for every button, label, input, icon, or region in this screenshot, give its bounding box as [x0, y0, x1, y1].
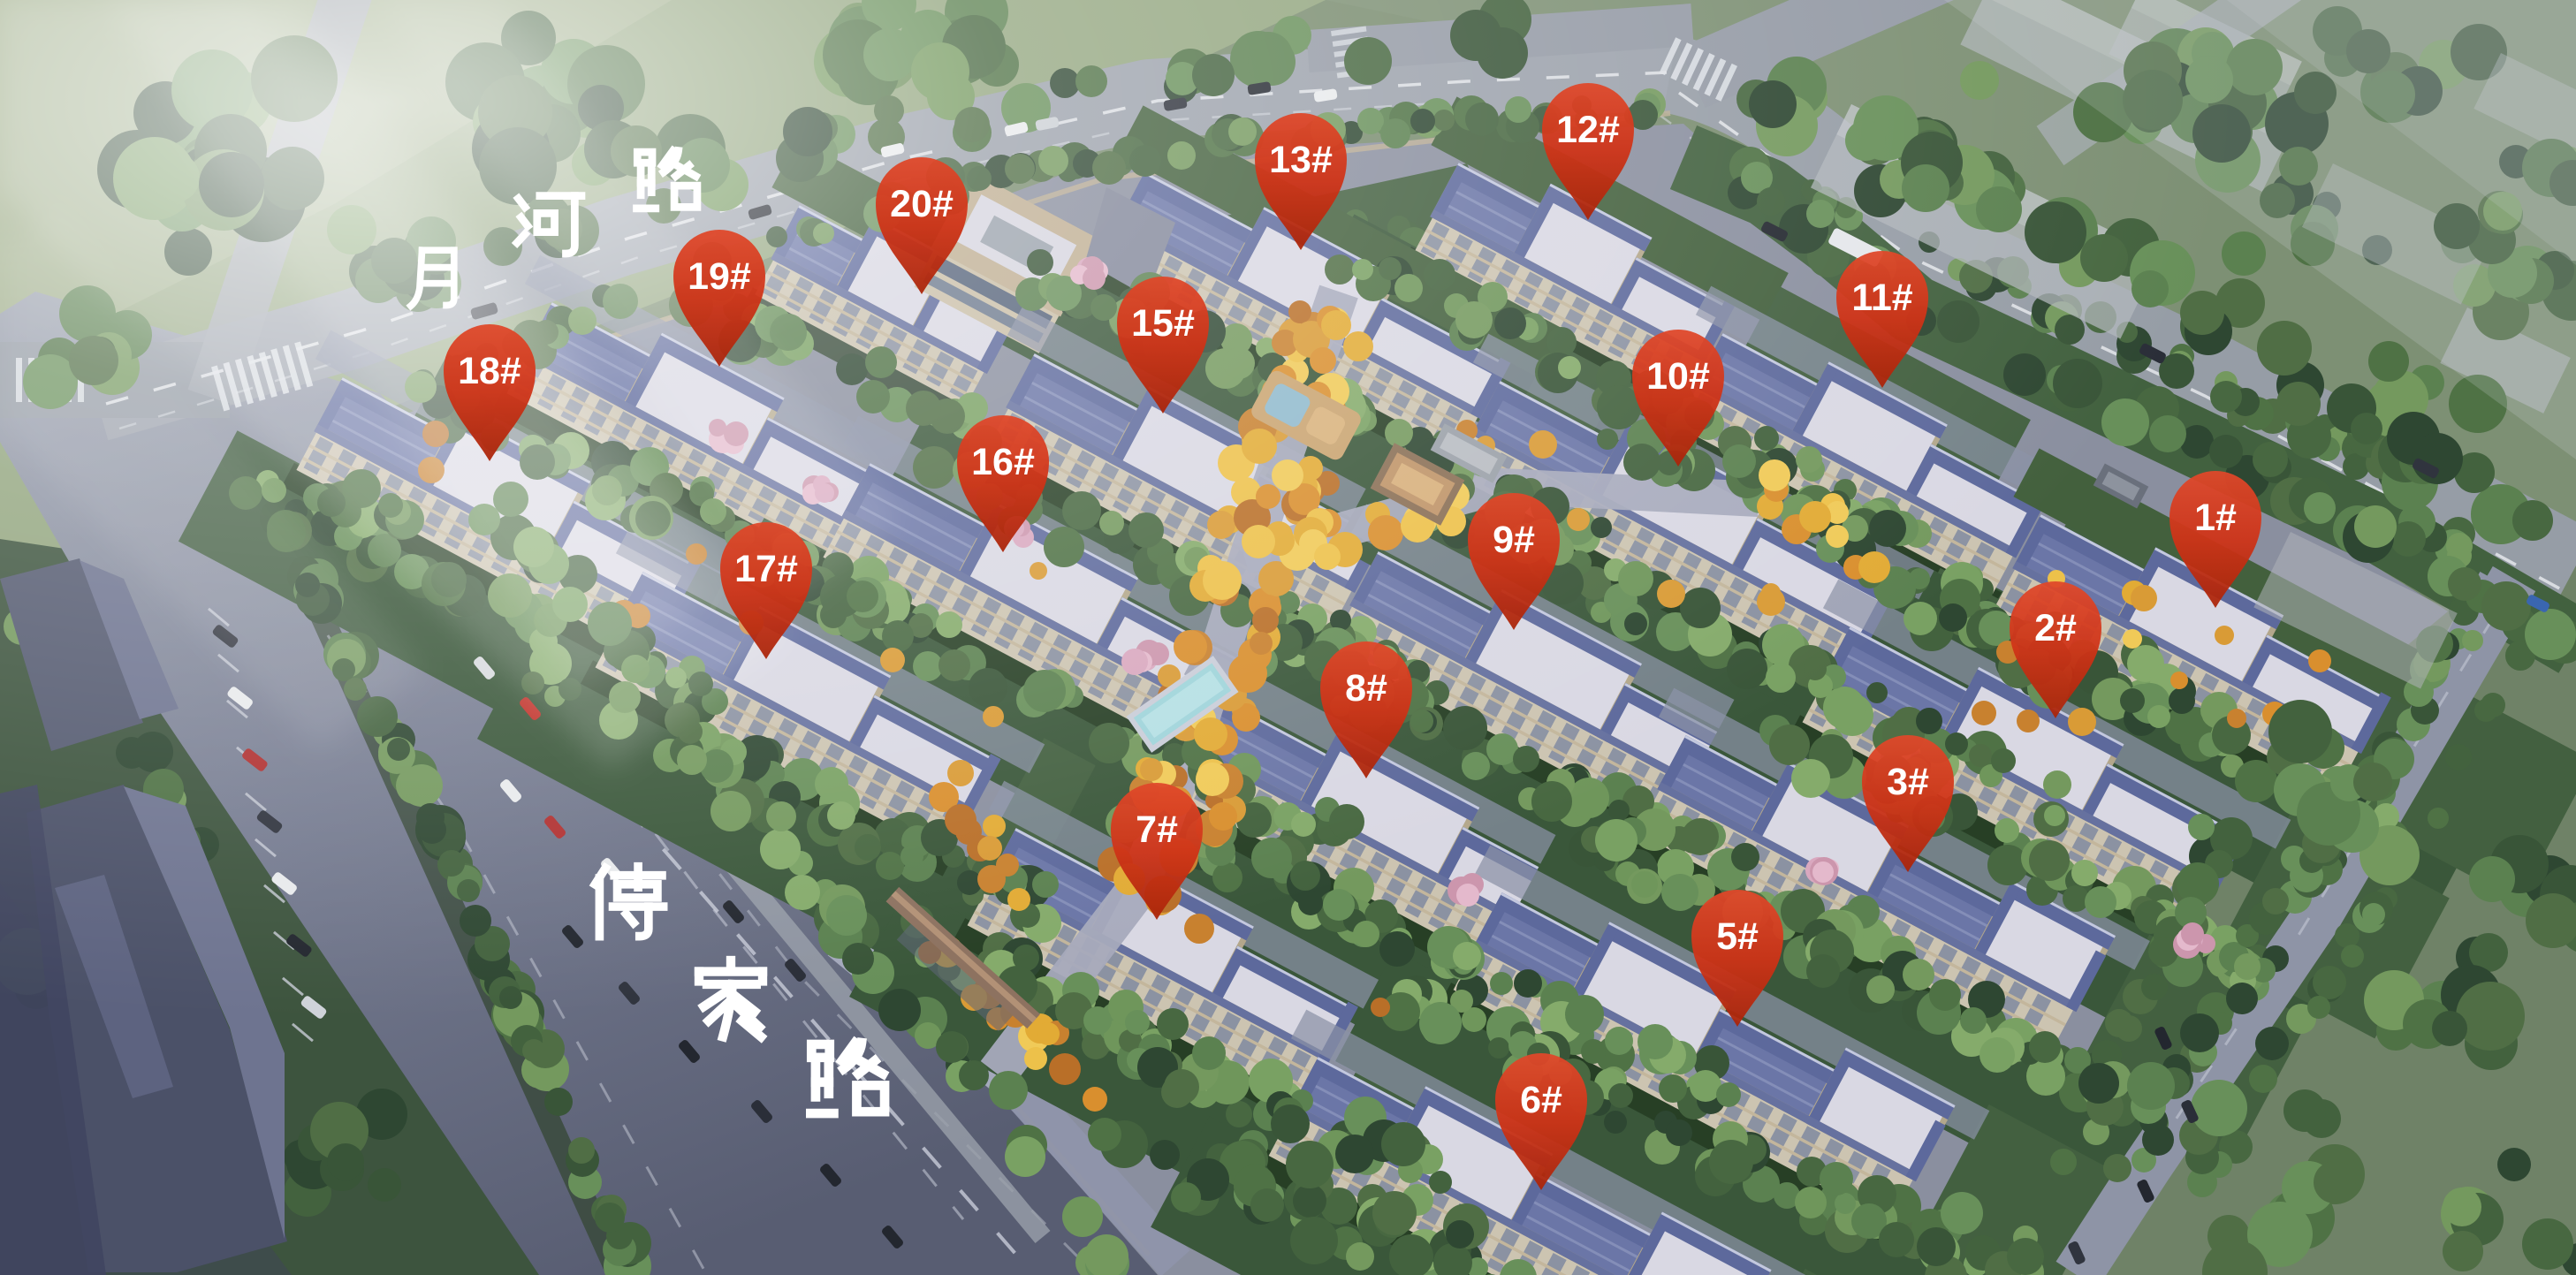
svg-text:17#: 17#: [734, 548, 798, 590]
svg-text:6#: 6#: [1520, 1079, 1562, 1121]
svg-text:13#: 13#: [1269, 139, 1333, 181]
svg-text:2#: 2#: [2034, 607, 2077, 649]
svg-text:18#: 18#: [458, 350, 521, 392]
svg-text:11#: 11#: [1851, 277, 1912, 319]
svg-text:3#: 3#: [1887, 761, 1929, 803]
svg-text:7#: 7#: [1136, 808, 1178, 851]
svg-text:20#: 20#: [890, 183, 954, 225]
svg-text:15#: 15#: [1131, 302, 1195, 345]
svg-text:16#: 16#: [971, 441, 1035, 483]
svg-text:19#: 19#: [688, 255, 751, 298]
svg-text:1#: 1#: [2194, 497, 2237, 539]
svg-text:10#: 10#: [1646, 355, 1710, 398]
svg-text:5#: 5#: [1716, 915, 1759, 958]
svg-text:12#: 12#: [1556, 109, 1620, 151]
svg-text:9#: 9#: [1493, 519, 1535, 561]
svg-text:8#: 8#: [1345, 667, 1387, 710]
